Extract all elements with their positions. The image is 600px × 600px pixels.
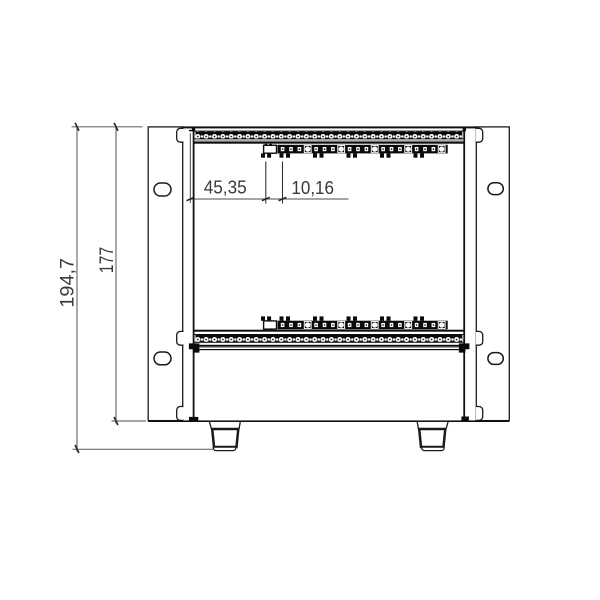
svg-text:45,35: 45,35 [204, 178, 247, 198]
svg-text:10,16: 10,16 [291, 178, 334, 198]
svg-text:177: 177 [96, 247, 118, 274]
svg-text:194,7: 194,7 [57, 258, 79, 308]
